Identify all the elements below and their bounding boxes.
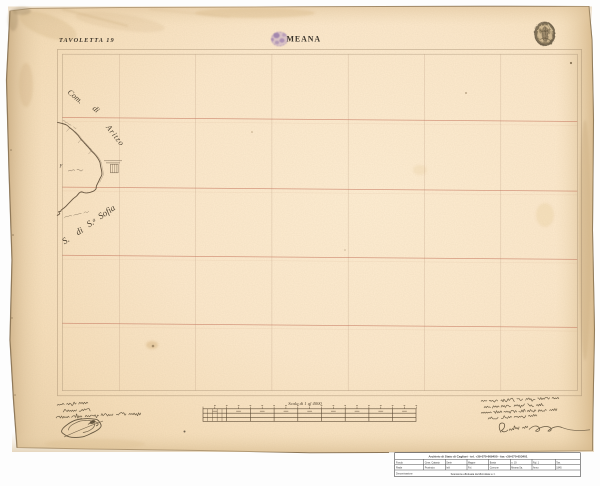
svg-text:Busta: Busta xyxy=(490,461,497,464)
svg-text:Isili: Isili xyxy=(446,467,450,470)
svg-text:Provincia: Provincia xyxy=(425,467,436,470)
svg-text:1845: 1845 xyxy=(556,467,562,470)
svg-text:Reale: Reale xyxy=(396,467,403,470)
svg-text:Meana Sa.: Meana Sa. xyxy=(511,467,523,470)
svg-text:Archivio di Stato di Cagliari: Archivio di Stato di Cagliari - tel. +39… xyxy=(428,454,527,458)
svg-text:Anno: Anno xyxy=(533,467,539,470)
svg-text:Fondo: Fondo xyxy=(396,461,403,464)
svg-text:Scala di 1 al 4000: Scala di 1 al 4000 xyxy=(288,401,322,406)
svg-text:Serie: Serie xyxy=(446,461,452,464)
svg-text:Tav.: Tav. xyxy=(556,461,561,464)
svg-text:Denominazione: Denominazione xyxy=(396,473,413,476)
svg-text:Fgl. 1: Fgl. 1 xyxy=(533,461,540,464)
svg-text:MEANA: MEANA xyxy=(287,35,322,44)
svg-text:Scansione effettuata da Microd: Scansione effettuata da Microdata s.r.l. xyxy=(451,472,496,476)
svg-text:Comune: Comune xyxy=(490,467,500,470)
svg-text:Cess. Catasto: Cess. Catasto xyxy=(425,461,441,464)
svg-text:Mappe: Mappe xyxy=(468,461,476,464)
svg-text:Fol.: Fol. xyxy=(468,467,472,470)
svg-text:TAVOLETTA 19: TAVOLETTA 19 xyxy=(59,37,115,44)
svg-text:n. 19: n. 19 xyxy=(511,461,517,464)
